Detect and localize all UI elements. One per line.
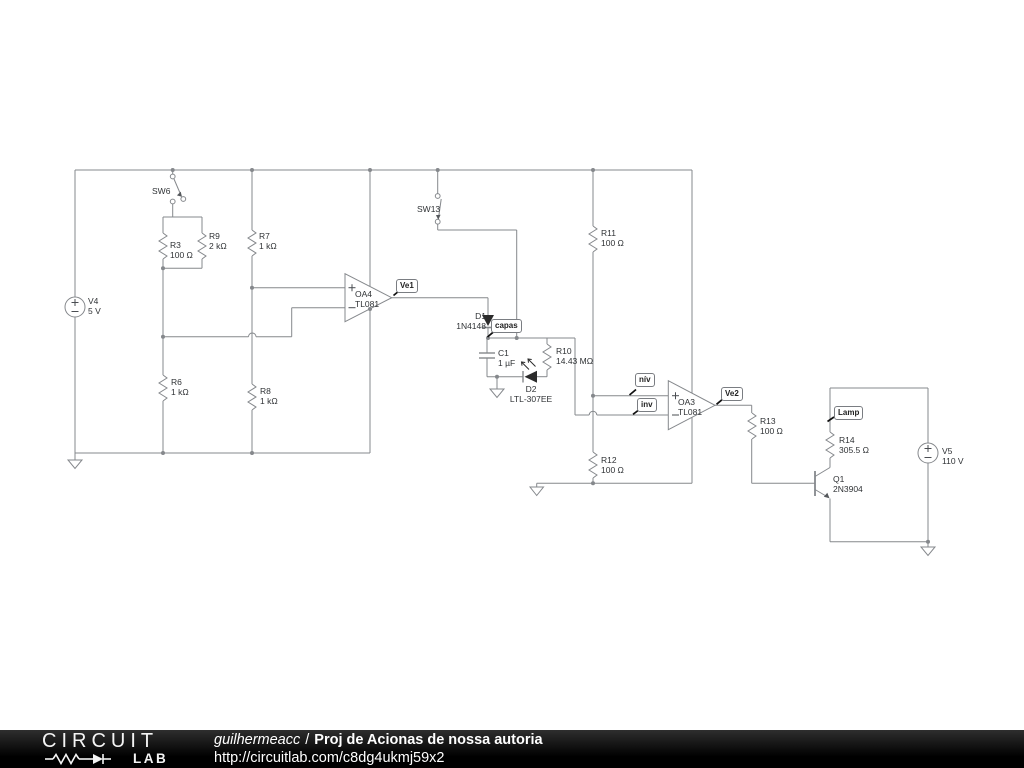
label-q1: Q12N3904 (833, 474, 863, 494)
net-flag-lamp: Lamp (834, 406, 863, 420)
label-r8: R81 kΩ (260, 386, 278, 406)
label-c1: C11 µF (498, 348, 515, 368)
footer-separator: / (305, 732, 309, 748)
label-r14: R14305.5 Ω (839, 435, 869, 455)
source-v4 (65, 297, 85, 317)
footer-username: guilhermeacc (214, 732, 300, 748)
circuitlab-logo: CIRCUIT LAB (42, 732, 192, 766)
label-oa4: OA4TL081 (355, 289, 379, 309)
ground-bottom (530, 487, 544, 496)
ground-left (68, 460, 82, 469)
footer-title-line: guilhermeacc/Proj de Acionas de nossa au… (214, 731, 543, 749)
label-d2: D2LTL-307EE (501, 384, 561, 404)
label-v5: V5110 V (942, 446, 964, 466)
label-r9: R92 kΩ (209, 231, 227, 251)
label-sw6: SW6 (152, 186, 170, 196)
label-r6: R61 kΩ (171, 377, 189, 397)
net-flag-niv: nív (635, 373, 655, 387)
logo-circuit-text: CIRCUIT (42, 732, 192, 750)
label-oa3: OA3TL081 (678, 397, 702, 417)
label-d1: D11N4148 (444, 311, 486, 331)
led-d2 (522, 359, 538, 383)
resistor-r11 (589, 226, 597, 252)
net-flag-ve1: Ve1 (396, 279, 418, 293)
resistor-r3 (159, 233, 167, 259)
footer-bar: CIRCUIT LAB guilhermeacc/Proj de Acionas… (0, 730, 1024, 768)
circuitlab-page: V45 V SW6 R3100 Ω R92 kΩ R71 kΩ R61 kΩ R… (0, 0, 1024, 768)
label-r7: R71 kΩ (259, 231, 277, 251)
label-r10: R1014.43 MΩ (556, 346, 593, 366)
label-r11: R11100 Ω (601, 228, 624, 248)
resistor-r6 (159, 375, 167, 401)
net-flag-ve2: Ve2 (721, 387, 743, 401)
source-v5 (918, 443, 938, 463)
label-r12: R12100 Ω (601, 455, 624, 475)
resistor-r13 (748, 413, 756, 439)
label-sw13: SW13 (417, 204, 440, 214)
net-flag-capas: capas (491, 319, 522, 333)
footer-url-link[interactable]: http://circuitlab.com/c8dg4ukmj59x2 (214, 750, 445, 766)
resistor-r9 (198, 233, 206, 259)
label-r13: R13100 Ω (760, 416, 783, 436)
resistor-r7 (248, 230, 256, 256)
ground-right (921, 547, 935, 556)
schematic-canvas: V45 V SW6 R3100 Ω R92 kΩ R71 kΩ R61 kΩ R… (0, 0, 1024, 730)
label-v4: V45 V (88, 296, 101, 316)
resistor-r12 (589, 452, 597, 478)
resistor-r8 (248, 384, 256, 410)
net-flag-inv: inv (637, 398, 657, 412)
logo-resistor-diode-icon (42, 752, 130, 766)
footer-text: guilhermeacc/Proj de Acionas de nossa au… (214, 731, 543, 767)
label-r3: R3100 Ω (170, 240, 193, 260)
resistor-r14 (826, 432, 834, 458)
footer-project-title: Proj de Acionas de nossa autoria (314, 732, 542, 748)
logo-lab-text: LAB (133, 751, 168, 766)
resistor-r10 (543, 344, 551, 370)
